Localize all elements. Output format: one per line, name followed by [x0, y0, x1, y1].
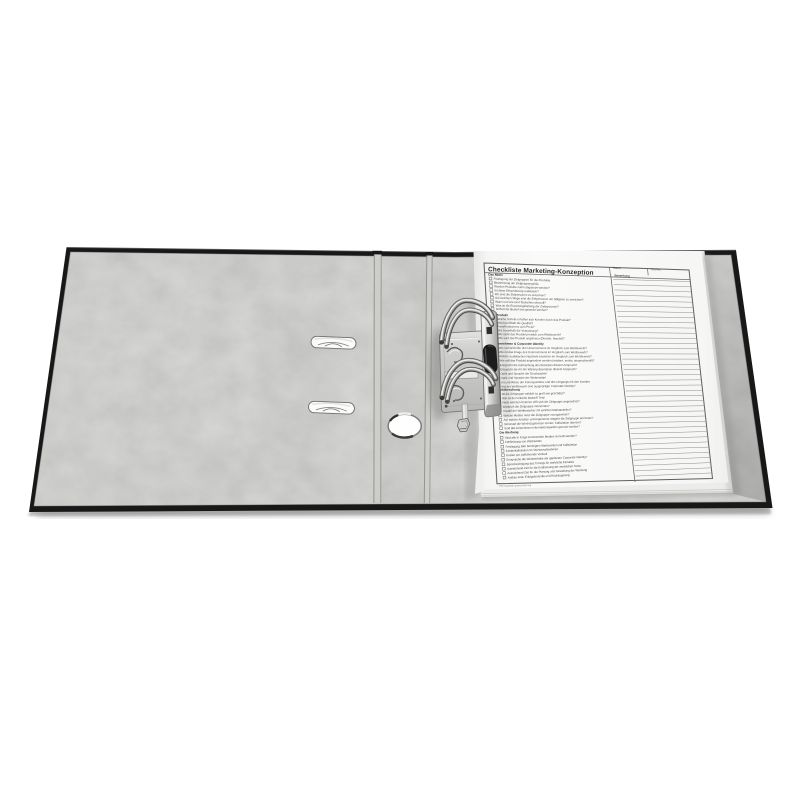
svg-text:Wie wird das Produkt angeboten: Wie wird das Produkt angeboten (Dienste,…	[498, 336, 565, 341]
svg-text:Die Werbung: Die Werbung	[499, 430, 518, 435]
svg-text:Bemerkung: Bemerkung	[614, 273, 630, 278]
svg-text:Zeichen:: Zeichen:	[651, 267, 662, 271]
svg-text:Wie soll das Produkt angeordne: Wie soll das Produkt angeordnet werden (…	[499, 358, 594, 362]
svg-text:Datum:: Datum:	[613, 266, 622, 270]
